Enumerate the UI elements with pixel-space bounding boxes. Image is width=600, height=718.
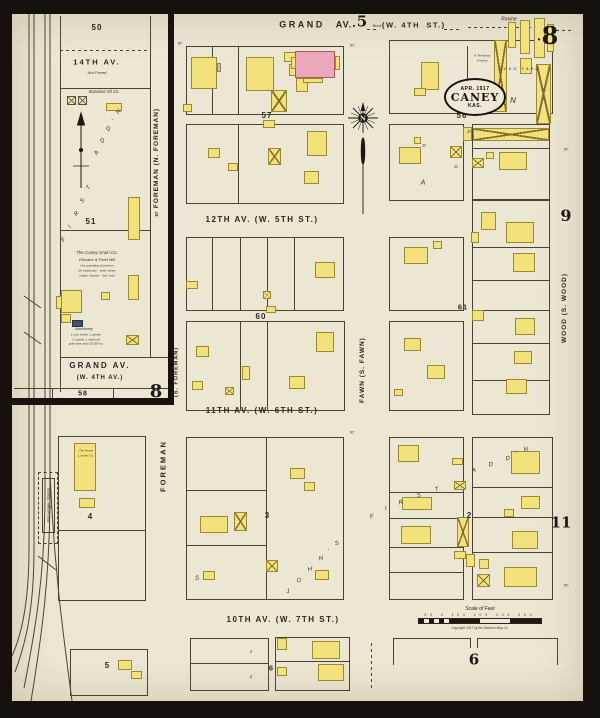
building [472, 158, 484, 168]
note-ravine: Ravine [501, 18, 517, 23]
map-label: No watchman · heat: steam [78, 269, 116, 272]
page-number-8-top: 8 [542, 24, 559, 48]
block-number-4: 4 [88, 513, 92, 521]
section-line-marker [361, 138, 364, 214]
map-label: Lights: electric · fuel: coal [80, 274, 115, 277]
map-label: Brick [373, 24, 382, 28]
building [277, 638, 287, 650]
building [479, 559, 489, 569]
page-number-8-inset: 8 [150, 383, 163, 401]
page-ref-9: 9 [560, 208, 571, 224]
map-line [389, 492, 464, 493]
building [472, 310, 484, 321]
building [186, 281, 198, 289]
map-label: A [421, 180, 426, 187]
map-label: 80' [178, 42, 183, 46]
map-label: 1 [250, 650, 253, 655]
building [79, 498, 95, 508]
building [315, 570, 329, 580]
map-label: 2 [250, 675, 253, 680]
block-number-5: 5 [105, 662, 109, 670]
map-line [557, 638, 558, 665]
scale-bar [418, 618, 542, 624]
building [427, 365, 445, 379]
map-label: 1 corn sheller, 1 grinder [71, 334, 101, 337]
map-label: (W. 4TH AV.) [77, 375, 123, 381]
map-line [367, 29, 379, 30]
building [512, 531, 538, 549]
compass-rose-icon: N [348, 102, 378, 133]
street-11th-av: 11TH AV. (W. 6TH ST.) [206, 407, 319, 415]
building [414, 88, 426, 96]
map-line [472, 552, 553, 553]
map-line [150, 16, 151, 358]
building [304, 482, 315, 491]
building [316, 332, 334, 352]
building [315, 262, 335, 278]
map-line [267, 237, 268, 311]
map-label: D [467, 130, 470, 135]
building [520, 20, 530, 54]
building [246, 57, 274, 91]
street-wood: WOOD (S. WOOD) [562, 273, 569, 343]
map-label: H [307, 567, 312, 574]
block-number-58: 58 [78, 391, 88, 398]
building [183, 104, 192, 112]
building [457, 517, 469, 547]
map-label: 57 [155, 211, 160, 216]
building [307, 131, 327, 156]
building [433, 241, 442, 249]
map-line [389, 572, 464, 573]
building [200, 516, 228, 533]
sheet-ref-5: 5 [357, 15, 367, 30]
map-label: Grocery [477, 59, 488, 62]
street-12th-av: 12TH AV. (W. 5TH ST.) [206, 216, 319, 224]
map-line [472, 247, 550, 248]
sanborn-map-sheet: N 5014TH AV.Not PavedStandard Oil Co.51F… [0, 0, 600, 718]
map-line [58, 530, 146, 531]
street-fawn: FAWN (S. FAWN) [360, 337, 367, 403]
building [398, 445, 419, 462]
map-label: D [454, 165, 457, 170]
map-line [477, 638, 558, 639]
map-line [238, 124, 239, 204]
building [263, 291, 271, 299]
scale-title: Scale of Feet [410, 606, 550, 612]
map-label: 50' [350, 44, 355, 48]
map-line [294, 237, 295, 311]
building [101, 292, 110, 300]
map-line [472, 148, 550, 149]
building [473, 128, 549, 141]
street-grand-av: GRAND [279, 21, 325, 30]
page-ref-11: 11 [551, 516, 572, 531]
building [514, 351, 532, 364]
block-outline [58, 436, 146, 601]
building [61, 314, 71, 323]
map-line [14, 388, 168, 389]
map-line [267, 321, 268, 411]
building [506, 379, 527, 394]
building [394, 389, 403, 396]
building [481, 212, 496, 230]
building [454, 551, 466, 559]
map-line [60, 16, 61, 392]
sheet-ref-6: 6 [469, 653, 479, 668]
building [225, 387, 234, 395]
building [515, 318, 535, 335]
street-foreman-north: FOREMAN (N. FOREMAN) [154, 108, 161, 208]
block-number-6: 6 [269, 664, 273, 672]
building [404, 247, 428, 264]
building [266, 560, 278, 572]
map-label: • [538, 36, 541, 44]
stamp-state: KAS. [446, 103, 504, 109]
map-line [275, 661, 350, 662]
building [72, 320, 83, 327]
scale-ticks: 50 0 100 200 300 400 [410, 613, 550, 617]
map-line [472, 487, 553, 488]
north-arrow-icon [73, 113, 89, 188]
building [242, 366, 250, 380]
map-line [444, 29, 462, 30]
building [506, 222, 534, 243]
map-label: O [296, 578, 302, 585]
building [131, 671, 142, 679]
building [203, 571, 215, 580]
street-10th-av: 10TH AV. (W. 7TH ST.) [227, 616, 340, 624]
building [513, 253, 535, 272]
scale-of-feet: Scale of Feet 50 0 100 200 300 400 Copyr… [410, 606, 550, 630]
building [486, 152, 494, 159]
map-label: 60' [350, 431, 355, 435]
building [289, 376, 305, 389]
map-label: 50' [564, 148, 569, 152]
map-label: D [422, 144, 425, 149]
stamp-city: CANEY [446, 92, 504, 103]
street-w-4th: (W. 4TH [382, 21, 420, 29]
building [191, 57, 217, 89]
map-label: • [353, 24, 355, 31]
note-not-paved: Not Paved [88, 71, 107, 75]
map-line [472, 280, 550, 281]
building [536, 64, 551, 124]
street-foreman-south: FOREMAN [159, 440, 167, 492]
map-label: AV. [336, 21, 353, 30]
building [521, 496, 540, 509]
map-line [393, 638, 470, 639]
map-label: Elevator & Feed Mill [79, 258, 115, 262]
street-14th-av: 14TH AV. [73, 58, 120, 66]
map-line [470, 638, 471, 648]
map-line [477, 638, 478, 648]
map-line [240, 321, 241, 411]
building [78, 96, 87, 105]
block-outline [190, 638, 269, 691]
building [67, 96, 76, 105]
map-line [186, 545, 266, 546]
building [295, 51, 335, 78]
map-label: 1 crusher, 1 meal bolt [72, 338, 100, 341]
building [414, 137, 421, 144]
map-line [389, 518, 464, 519]
building [401, 526, 431, 544]
map-label: Lumber Co. [78, 454, 94, 457]
block-number-57: 57 [262, 112, 273, 120]
map-line [60, 357, 168, 358]
copyright-line: Copyright 1917 by the Sanborn Map Co. [410, 626, 550, 630]
building [471, 232, 479, 243]
building [404, 338, 421, 351]
building [234, 512, 247, 531]
caney-date-stamp: APR. 1917 CANEY KAS. [444, 78, 506, 116]
street-grand-av-inset: GRAND AV. [69, 362, 130, 370]
building [128, 275, 139, 300]
building [312, 641, 340, 659]
map-label: ST.) [426, 21, 445, 29]
block-number-51: 51 [86, 218, 97, 226]
block-number-3: 3 [265, 512, 269, 520]
building [291, 57, 296, 69]
map-line [472, 517, 553, 518]
building [504, 567, 537, 587]
map-label: Not operating at present [80, 264, 113, 267]
map-line [186, 490, 266, 491]
landmark-caney-grain: The Caney Grain Co. [76, 251, 118, 255]
building [208, 148, 220, 158]
building [126, 335, 139, 345]
building [217, 63, 221, 72]
building [304, 171, 319, 184]
map-line [472, 343, 550, 344]
building [271, 90, 287, 112]
map-line [556, 30, 572, 31]
building [192, 381, 203, 390]
map-line [238, 46, 239, 115]
map-label: T [434, 487, 439, 494]
building [290, 468, 305, 479]
building [452, 458, 463, 465]
map-line [371, 643, 372, 690]
map-line [389, 547, 464, 548]
map-line [240, 237, 241, 311]
building [450, 146, 462, 158]
street-s-foreman: (S. FOREMAN) [174, 347, 180, 397]
block-number-60: 60 [256, 313, 267, 321]
svg-text:N: N [360, 114, 366, 122]
building [263, 120, 275, 128]
landmark-passenger-station: Passenger Station [47, 488, 51, 522]
building [118, 660, 132, 670]
building [466, 554, 475, 567]
building [61, 290, 82, 313]
building [318, 664, 344, 681]
map-line [60, 50, 150, 51]
map-label: S [195, 576, 199, 582]
landmark-standard-oil: Standard Oil Co. [89, 90, 120, 94]
map-line [393, 638, 394, 665]
building [504, 509, 514, 517]
building [499, 152, 527, 170]
note-feed-yard: FEED YARD [500, 67, 541, 71]
map-line [212, 237, 213, 311]
building [196, 346, 209, 357]
building [128, 197, 140, 240]
building [303, 78, 323, 83]
building [454, 481, 466, 490]
building [421, 62, 439, 90]
block-number-61: 61 [458, 303, 468, 311]
building [277, 667, 287, 676]
map-label: grain bins cap'y 20,000 bu. [69, 343, 103, 346]
building [335, 56, 340, 70]
building [266, 306, 276, 313]
building [399, 147, 421, 164]
building [268, 148, 281, 165]
map-label: F [369, 514, 374, 521]
map-label: N [318, 556, 323, 563]
note-machinery: Machinery [75, 328, 93, 332]
building [477, 574, 490, 587]
block-number-50: 50 [92, 24, 103, 32]
building [508, 22, 516, 48]
map-label: 50' [564, 584, 569, 588]
block-number-2: 2 [467, 512, 471, 520]
building [228, 163, 238, 171]
map-label: N [510, 97, 516, 105]
map-line [190, 663, 269, 664]
